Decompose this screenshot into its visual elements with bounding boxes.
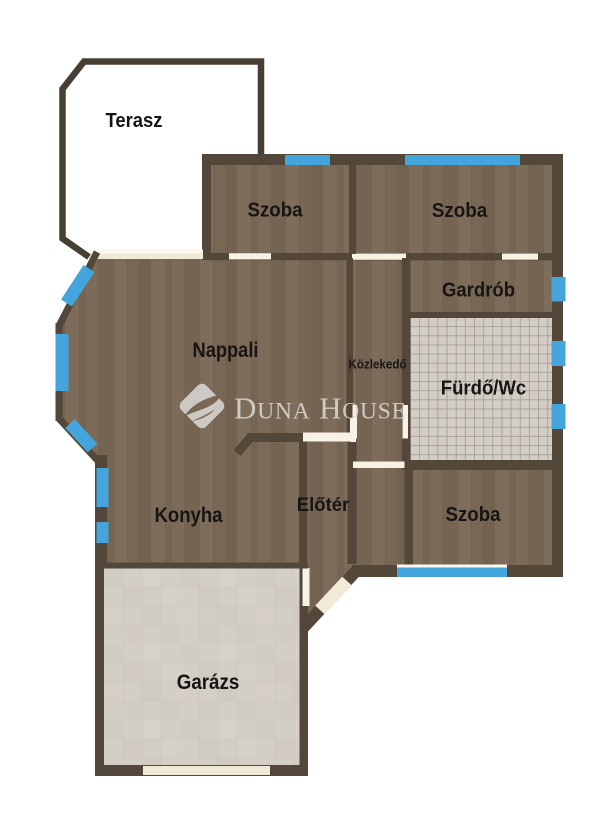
svg-text:Terasz: Terasz (106, 110, 163, 132)
svg-text:Szoba: Szoba (248, 199, 304, 222)
svg-text:Fürdő/Wc: Fürdő/Wc (441, 377, 527, 400)
svg-text:Nappali: Nappali (193, 339, 259, 362)
svg-text:Előtér: Előtér (297, 494, 350, 516)
svg-text:Garázs: Garázs (177, 671, 240, 694)
svg-text:Közlekedő: Közlekedő (349, 357, 407, 372)
svg-text:Konyha: Konyha (155, 504, 223, 527)
svg-text:Szoba: Szoba (446, 503, 502, 526)
svg-text:Szoba: Szoba (432, 199, 488, 222)
svg-text:Gardrób: Gardrób (442, 279, 515, 302)
